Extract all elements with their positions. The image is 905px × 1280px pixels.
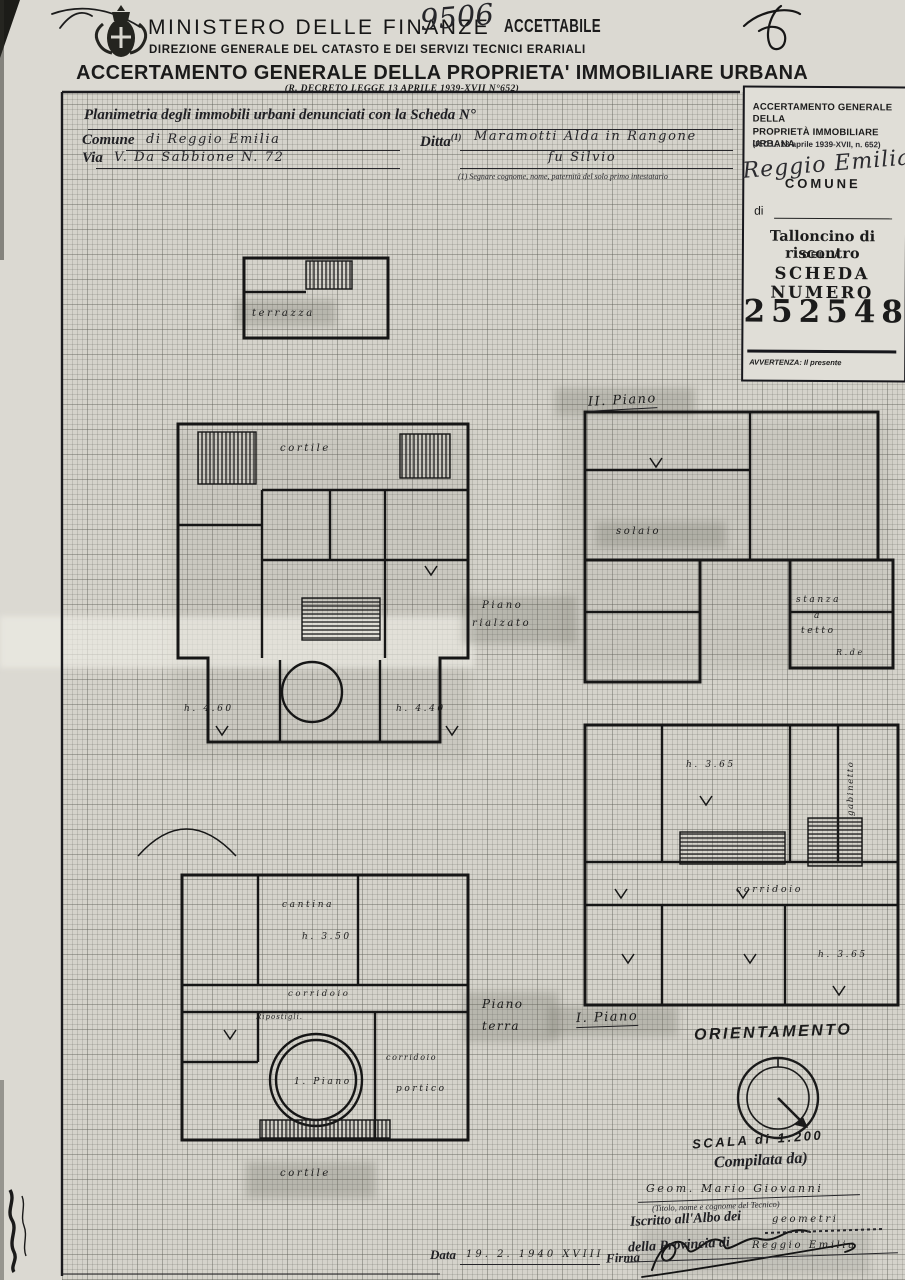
room-label: a (814, 611, 822, 621)
della-line: DELLA (744, 250, 901, 261)
margin-pen-marks (10, 1190, 26, 1272)
room-label: solaio (616, 526, 661, 537)
comune-value: di Reggio Emilia (146, 132, 281, 147)
floor-label: I. Piano (576, 1009, 639, 1028)
data-handwritten: 19. 2. 1940 XVIII (466, 1249, 604, 1260)
via-value: V. Da Sabbione N. 72 (114, 150, 285, 165)
data-label: Data (430, 1247, 456, 1263)
albo-handwritten: geometri (772, 1214, 839, 1225)
handwritten-number: 9506 (419, 0, 495, 37)
room-label: corridoio (736, 884, 803, 895)
room-label: R.de (836, 648, 865, 657)
via-label: Via (82, 150, 103, 167)
avvertenza: AVVERTENZA: Il presente (749, 358, 897, 368)
ditta-label: Ditta(1) (420, 132, 461, 151)
direction-subtitle: DIREZIONE GENERALE DEL CATASTO E DEI SER… (149, 44, 586, 56)
floor-label: Piano (482, 997, 524, 1011)
law-reference: (R. DECRETO LEGGE 13 APRILE 1939-XVII N°… (66, 84, 738, 94)
room-label: cortile (280, 443, 331, 454)
ruled-line (774, 218, 892, 220)
tecnico-handwritten: Geom. Mario Giovanni (646, 1182, 823, 1195)
ruled-line (96, 168, 400, 169)
scheda-number: 2525482 (743, 294, 900, 331)
planimetria-label: Planimetria degli immobili urbani denunc… (84, 107, 476, 124)
height-note: h. 3.65 (818, 950, 868, 960)
height-note: h. 4.40 (396, 704, 446, 714)
scan-edge (0, 1080, 4, 1280)
height-note: h. 3.50 (302, 932, 352, 942)
room-label: cantina (282, 900, 334, 910)
room-label: corridoio (386, 1053, 437, 1062)
ditta-value-2: fu Silvio (548, 150, 616, 165)
room-label: portico (396, 1084, 447, 1094)
ditta-label-text: Ditta (420, 134, 451, 150)
floor-label: II. Piano (588, 391, 658, 412)
di-label: di (754, 204, 763, 218)
pen-flourish-top-right (744, 6, 800, 49)
talloncino-title-line1: ACCERTAMENTO GENERALE DELLA (753, 102, 893, 126)
corner-shadow (0, 0, 20, 58)
height-note: h. 3.65 (686, 760, 736, 770)
ruled-line (460, 168, 733, 169)
floor-label: Piano (482, 600, 523, 611)
talloncino-box: ACCERTAMENTO GENERALE DELLA PROPRIETÀ IM… (741, 85, 905, 382)
provincia-handwritten: Reggio Emilia (752, 1240, 857, 1251)
room-label: stanza (796, 595, 841, 605)
footnote: (1) Segnare cognome, nome, paternità del… (458, 172, 668, 181)
room-label: 1. Piano (294, 1077, 352, 1087)
scanned-cadastral-form: MINISTERO DELLE FINANZE 9506 ACCETTABILE… (0, 0, 905, 1280)
ditta-footnote-ref: (1) (451, 132, 462, 142)
page-title: ACCERTAMENTO GENERALE DELLA PROPRIETA' I… (76, 61, 728, 85)
pen-mark-top-left (52, 9, 140, 28)
room-label: Ripostigli. (256, 1013, 303, 1021)
room-label: gabinetto (846, 760, 856, 816)
firma-label: Firma (606, 1249, 641, 1266)
room-label: terrazza (252, 308, 315, 319)
accettabile-stamp: ACCETTABILE (504, 16, 601, 37)
thick-rule (747, 350, 896, 354)
floor-label: rialzato (472, 618, 531, 629)
coat-of-arms-icon (96, 5, 145, 57)
room-label: corridoio (288, 989, 351, 999)
comune-label: Comune (82, 132, 135, 149)
scan-fold-band (0, 616, 475, 668)
room-label: tetto (801, 626, 836, 636)
room-label: cortile (280, 1168, 331, 1179)
ditta-value: Maramotti Alda in Rangone (474, 129, 697, 144)
floor-label: terra (482, 1019, 520, 1033)
ruled-line (460, 1264, 600, 1265)
scan-edge (0, 0, 4, 260)
height-note: h. 4.60 (184, 704, 234, 714)
